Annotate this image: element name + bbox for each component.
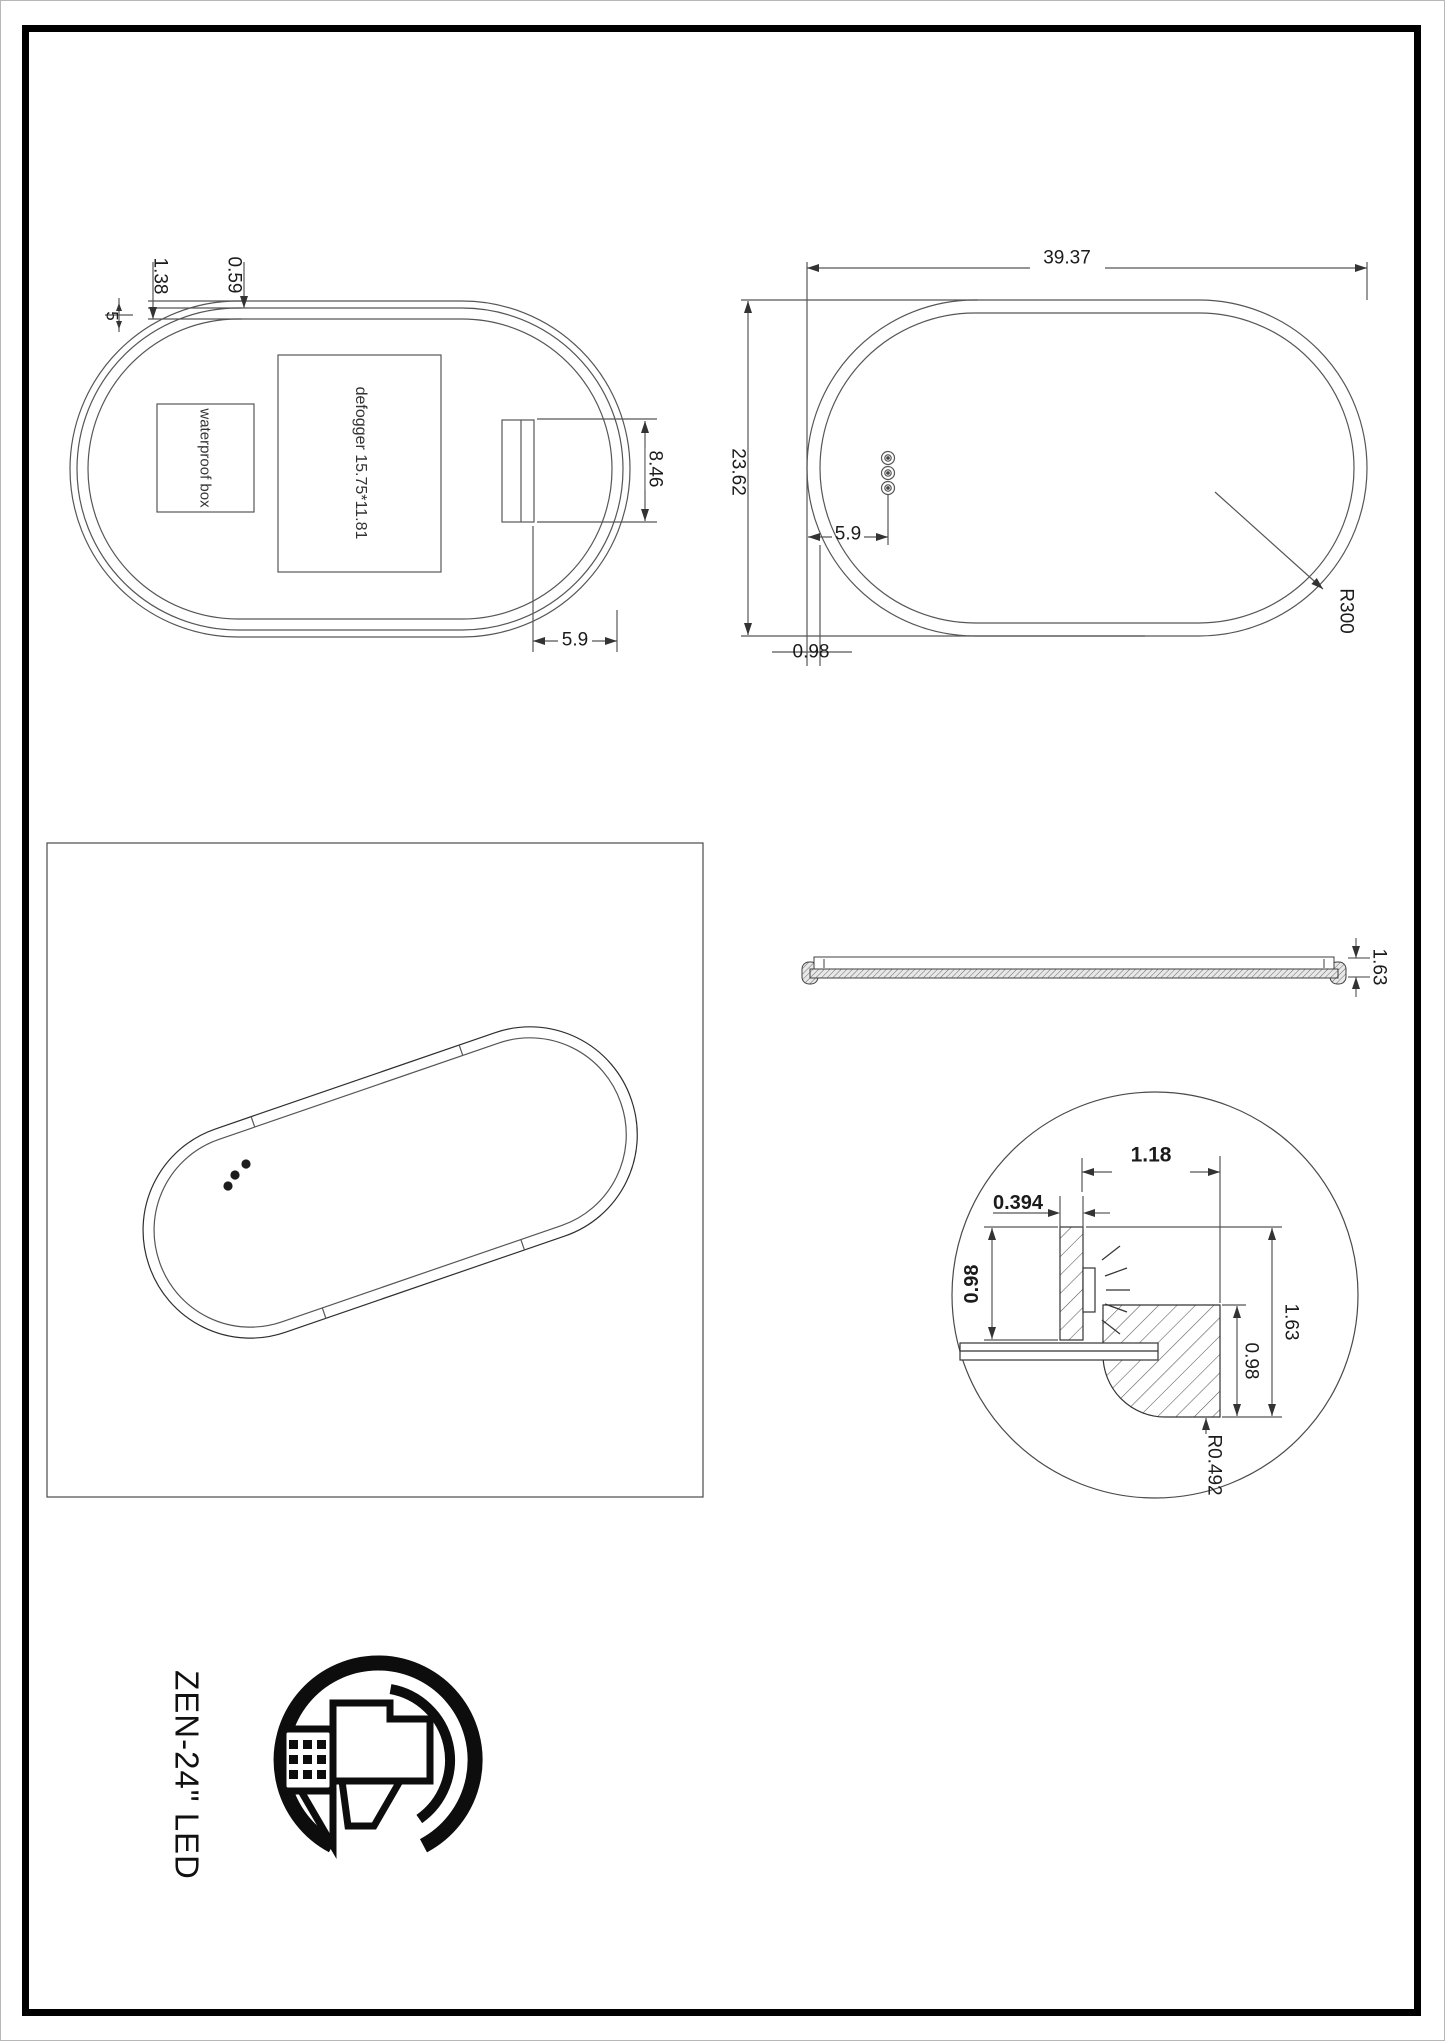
dim-detail-led-width: 0.394 bbox=[993, 1193, 1043, 1213]
dim-rear-edge-gap: 5 bbox=[104, 311, 121, 320]
drawing-sheet: waterproof box defogger 15.75*11.81 5 1.… bbox=[0, 0, 1445, 2041]
dim-front-height: 23.62 bbox=[729, 448, 748, 496]
dim-detail-fillet-radius: R0.492 bbox=[1205, 1434, 1224, 1495]
defogger-label: defogger 15.75*11.81 bbox=[352, 387, 368, 540]
sensor-buttons-icon bbox=[882, 452, 895, 495]
dim-side-thickness: 1.63 bbox=[1370, 949, 1389, 986]
front-view bbox=[741, 262, 1367, 666]
dim-detail-profile-depth: 0.98 bbox=[1242, 1343, 1261, 1380]
waterproof-box-label: waterproof box bbox=[198, 408, 213, 507]
dim-rear-frame-depth: 1.38 bbox=[151, 258, 170, 295]
brand-logo-icon bbox=[281, 1663, 475, 1846]
side-view bbox=[802, 938, 1370, 997]
dim-detail-channel-span: 1.18 bbox=[1131, 1145, 1172, 1166]
dim-front-edge-width: 0.98 bbox=[793, 643, 830, 662]
dim-detail-led-height: 0.98 bbox=[962, 1265, 982, 1304]
dim-rear-frame-lip: 0.59 bbox=[225, 257, 244, 294]
dim-rear-bracket-inset: 5.9 bbox=[562, 631, 588, 650]
perspective-view bbox=[47, 843, 703, 1497]
dim-front-width: 39.37 bbox=[1043, 249, 1091, 268]
dim-front-corner-radius: R300 bbox=[1337, 588, 1356, 633]
dim-front-sensor-inset: 5.9 bbox=[835, 525, 861, 544]
dim-detail-total-depth: 1.63 bbox=[1282, 1304, 1301, 1341]
line-art bbox=[0, 0, 1445, 2041]
product-name: ZEN-24" LED bbox=[171, 1670, 204, 1880]
sensor-buttons-icon bbox=[223, 1159, 250, 1190]
dim-rear-bracket-height: 8.46 bbox=[646, 448, 665, 491]
